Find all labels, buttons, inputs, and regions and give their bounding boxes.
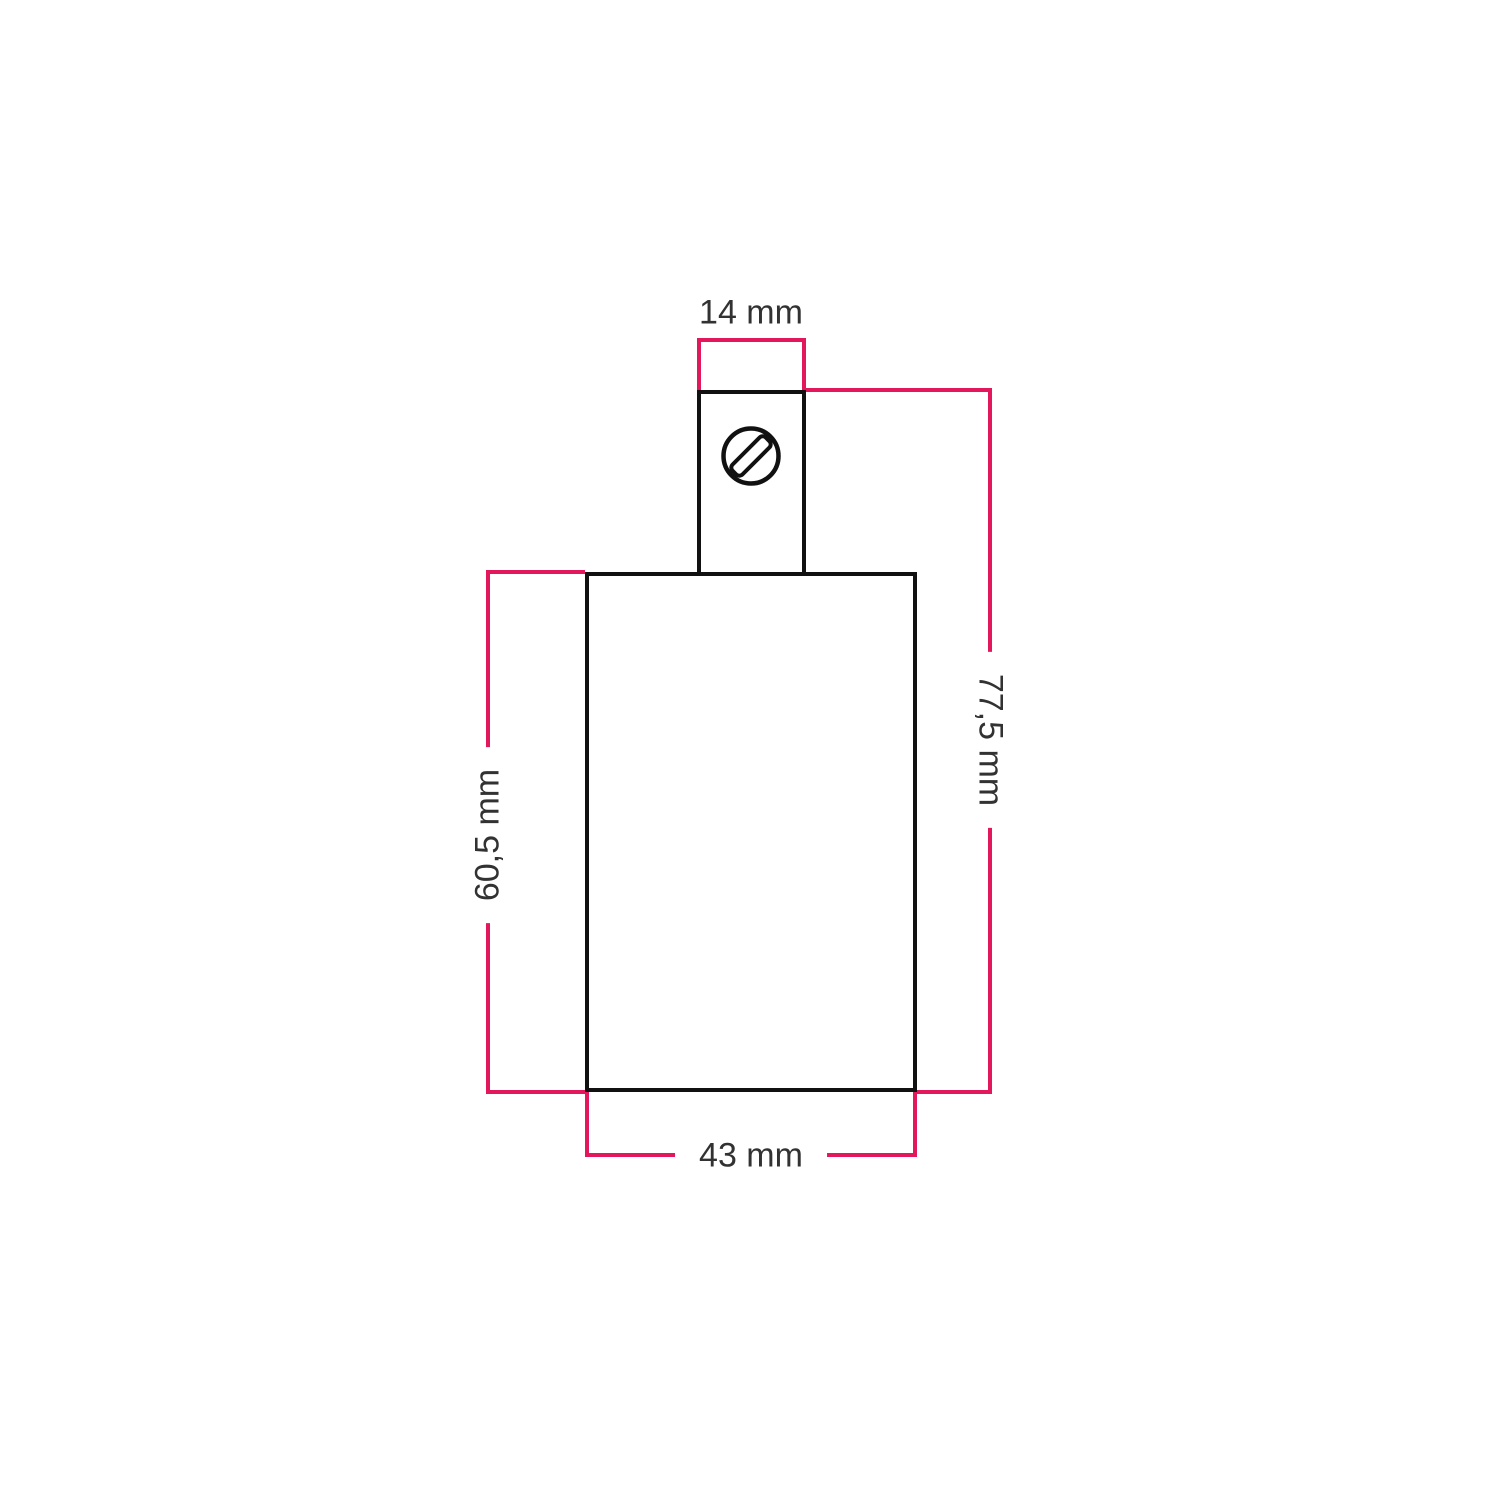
dimension-label-right: 77,5 mm [971, 652, 1008, 828]
dimension-label-left: 60,5 mm [469, 747, 506, 923]
dimension-line [585, 1092, 589, 1157]
dimension-line [806, 388, 992, 392]
dimension-line [486, 570, 585, 574]
dimension-line [802, 338, 806, 390]
dimension-line [697, 338, 701, 390]
slotted-screw-icon [718, 423, 784, 489]
dimension-drawing-canvas: 14 mm 77,5 mm 60,5 mm 43 mm [0, 0, 1500, 1500]
dimension-line [913, 1092, 917, 1157]
dimension-label-bottom: 43 mm [675, 1137, 827, 1174]
dimension-line [917, 1090, 992, 1094]
dimension-label-top: 14 mm [693, 294, 809, 331]
dimension-line [486, 1090, 585, 1094]
dimension-line [697, 338, 806, 342]
lamp-holder-body-outline [585, 572, 917, 1092]
